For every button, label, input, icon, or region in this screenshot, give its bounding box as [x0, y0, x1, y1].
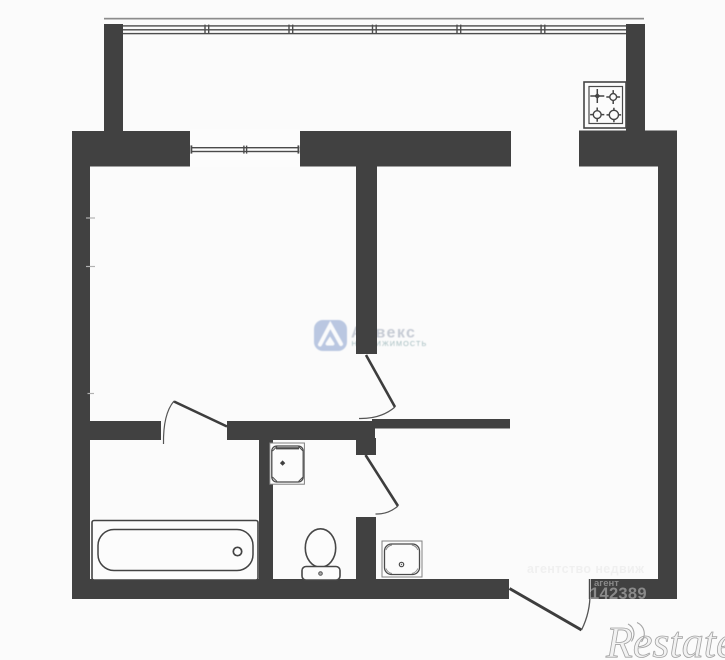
svg-text:142389: 142389 — [590, 585, 647, 603]
svg-text:агентство недвиж: агентство недвиж — [527, 562, 644, 576]
svg-text:Restate: Restate — [605, 618, 725, 660]
